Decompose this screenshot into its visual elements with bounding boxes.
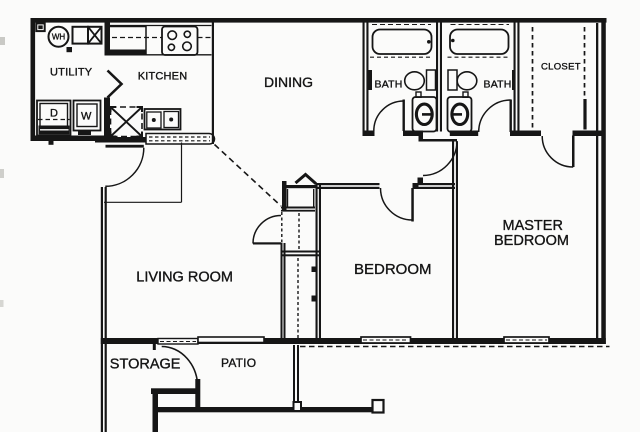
svg-text:KITCHEN: KITCHEN [138,71,188,83]
svg-text:LIVING ROOM: LIVING ROOM [136,270,233,286]
svg-text:PATIO: PATIO [221,356,256,370]
svg-text:DINING: DINING [264,74,313,90]
svg-text:BEDROOM: BEDROOM [494,233,569,249]
svg-text:BATH: BATH [484,79,512,91]
svg-text:BEDROOM: BEDROOM [354,261,432,278]
svg-text:UTILITY: UTILITY [50,67,93,79]
svg-text:MASTER: MASTER [503,218,563,234]
svg-text:STORAGE: STORAGE [110,356,181,372]
svg-text:BATH: BATH [375,79,403,91]
svg-text:D: D [50,108,58,120]
svg-text:WH: WH [52,33,66,42]
svg-text:W: W [81,111,92,123]
svg-text:CLOSET: CLOSET [541,62,581,73]
